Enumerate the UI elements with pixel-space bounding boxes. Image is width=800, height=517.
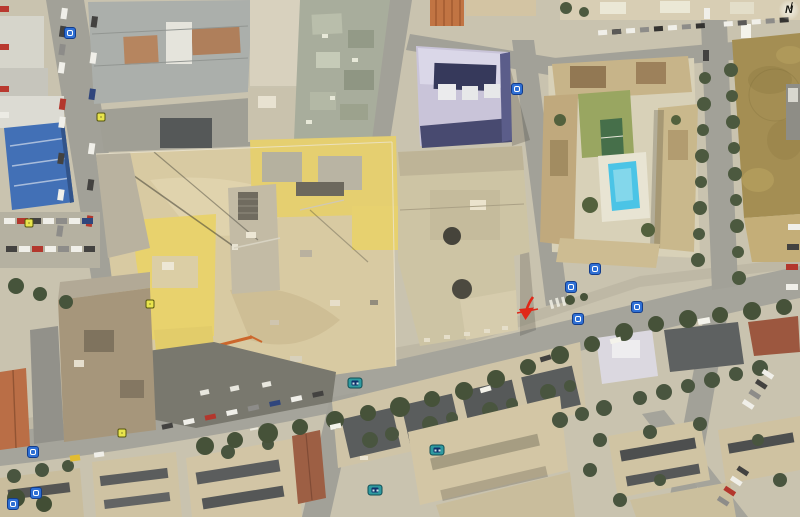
signal-placemark-icon[interactable] [97, 113, 106, 122]
signal-placemark-icon[interactable] [146, 300, 155, 309]
photo-placemark-icon[interactable] [565, 281, 577, 293]
photo-placemark-icon[interactable] [27, 446, 39, 458]
north-indicator[interactable]: N [779, 0, 799, 20]
photo-tint [0, 0, 800, 517]
bus-stop-placemark-icon[interactable] [430, 445, 445, 456]
photo-placemark-icon[interactable] [7, 498, 19, 510]
photo-placemark-icon[interactable] [64, 27, 76, 39]
photo-placemark-icon[interactable] [589, 263, 601, 275]
photo-placemark-icon[interactable] [30, 487, 42, 499]
signal-placemark-icon[interactable] [25, 219, 34, 228]
bus-stop-placemark-icon[interactable] [368, 485, 383, 496]
photo-placemark-icon[interactable] [572, 313, 584, 325]
bus-stop-placemark-icon[interactable] [348, 378, 363, 389]
signal-placemark-icon[interactable] [118, 429, 127, 438]
photo-placemark-icon[interactable] [631, 301, 643, 313]
photo-placemark-icon[interactable] [511, 83, 523, 95]
aerial-map-canvas[interactable]: N [0, 0, 800, 517]
